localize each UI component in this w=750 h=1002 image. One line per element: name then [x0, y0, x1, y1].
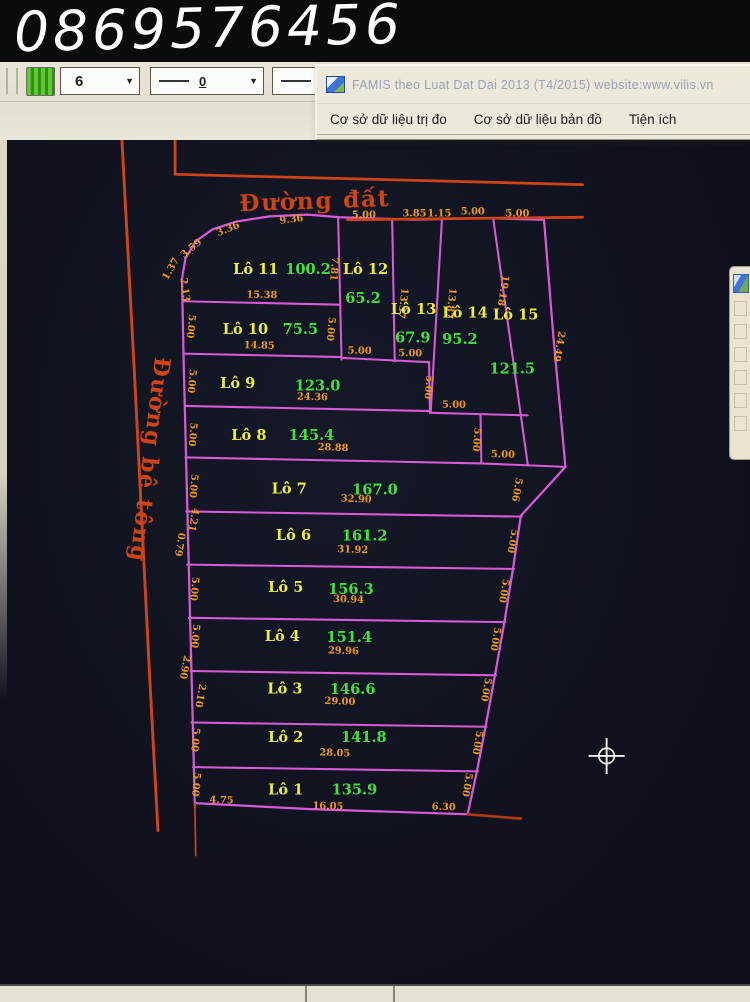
row-line-lot3-bottom: [191, 722, 486, 726]
line-style-dropdown-1[interactable]: 0 ▼: [150, 67, 264, 95]
dimension-label: 3.36: [215, 220, 242, 239]
row-line-lot11-bottom: [183, 301, 340, 304]
lot-area: 161.2: [342, 528, 388, 545]
lot-area: 167.0: [352, 481, 398, 498]
dimension-label: 28.05: [319, 747, 350, 759]
cadastral-map: 3.363.591.372.139.365.003.851.155.005.00…: [0, 140, 750, 985]
tool-button[interactable]: [734, 416, 747, 431]
dimension-label: 5.00: [442, 399, 466, 410]
row-line-lot6-bottom: [187, 565, 514, 569]
dimension-label: 5.00: [187, 576, 200, 601]
lot-label: Lô 6: [276, 527, 311, 544]
tool-button[interactable]: [734, 324, 747, 339]
row-line-lot9-bottom: [185, 406, 430, 411]
line-sample-icon: [281, 80, 311, 82]
side-tool-panel: [729, 266, 750, 460]
dimension-label: 5.00: [398, 348, 422, 359]
dimension-label: 3.59: [179, 237, 205, 261]
road-line-top-outer: [175, 140, 582, 185]
photo-top-bar: 0869576456: [0, 0, 750, 62]
dimension-label: 19.18: [495, 274, 511, 306]
lot13-bottom: [395, 360, 429, 362]
lot14-bottom-step: [430, 413, 528, 416]
row-line-lot8-bottom: [185, 457, 481, 463]
lot-area: 123.0: [295, 377, 341, 394]
menu-item-tien-ich[interactable]: Tiện ích: [629, 112, 677, 127]
line-style-value-1: 0: [199, 74, 206, 89]
dimension-label: 5.00: [324, 317, 337, 342]
dimension-label: 31.92: [337, 544, 368, 556]
lot-area: 95.2: [442, 331, 478, 348]
phone-number-overlay: 0869576456: [13, 0, 404, 64]
tool-button[interactable]: [734, 347, 747, 362]
dimension-label: 5.00: [469, 730, 484, 756]
tool-button[interactable]: [734, 393, 747, 408]
taskbar-fragment[interactable]: [0, 984, 750, 1002]
lot-area: 135.9: [332, 782, 378, 799]
lot12-bottom: [342, 358, 395, 361]
menu-item-csdl-tri-do[interactable]: Cơ sở dữ liệu trị đo: [330, 112, 447, 127]
row-line-lot4-bottom: [191, 671, 496, 675]
famis-app-icon: [326, 76, 345, 93]
lot-area: 75.5: [283, 321, 319, 338]
toolbar-grip-handle[interactable]: [6, 68, 18, 94]
lot15-bottom-step: [481, 463, 565, 466]
lot-area: 145.4: [289, 427, 335, 444]
lot-area: 146.6: [330, 681, 376, 698]
divider-lot14-lot15: [493, 220, 527, 464]
dimension-label: 15.38: [246, 290, 277, 302]
dimension-label: 5.00: [505, 528, 520, 554]
map-canvas[interactable]: 3.363.591.372.139.365.003.851.155.005.00…: [0, 140, 750, 985]
lot-label: Lô 7: [272, 480, 307, 497]
dimension-label: 5.00: [505, 208, 529, 219]
dimension-label: 5.00: [184, 314, 197, 339]
layer-value: 6: [75, 73, 83, 90]
lot-label: Lô 2: [268, 729, 303, 746]
famis-window-title: FAMIS theo Luat Dat Dai 2013 (T4/2015) w…: [352, 78, 714, 92]
lot-area: 141.8: [341, 729, 387, 746]
dimension-label: 6.30: [432, 802, 457, 814]
dimension-label: 5.00: [348, 345, 372, 356]
dimension-label: 5.00: [187, 473, 200, 498]
chevron-down-icon: ▼: [125, 76, 134, 86]
lot-area: 156.3: [328, 581, 374, 598]
dimension-label: 5.00: [470, 427, 483, 452]
lot-label: Lô 1: [268, 782, 303, 799]
lot-label: Lô 10: [223, 321, 268, 338]
lot-label: Lô 12: [343, 261, 388, 278]
chevron-down-icon: ▼: [249, 76, 258, 86]
dimension-label: 1.15: [427, 208, 451, 219]
dimension-label: 14.85: [244, 340, 275, 352]
lot-label: Lô 3: [267, 680, 302, 697]
road-line-bottom-tail: [468, 814, 521, 818]
lot-label: Lô 13: [391, 301, 436, 318]
line-sample-icon: [159, 80, 189, 82]
menu-item-csdl-ban-do[interactable]: Cơ sở dữ liệu bản đồ: [474, 112, 602, 127]
lot-label: Lô 4: [265, 628, 300, 645]
row-line-lot7-bottom: [186, 511, 521, 516]
map-tool-icon[interactable]: [733, 274, 749, 293]
boundary-tail-bottom-left: [195, 803, 196, 855]
dimension-label: 2.10: [192, 683, 207, 709]
divider-lot11-lot12: [338, 217, 341, 359]
lot-label: Lô 5: [268, 579, 303, 596]
dimension-label: 2.90: [177, 654, 192, 680]
dimension-label: 16.05: [312, 801, 343, 813]
lot-label: Lô 9: [220, 375, 255, 392]
dimension-label: 5.00: [188, 624, 201, 649]
lot-area: 151.4: [326, 629, 372, 646]
dimension-label: 0.79: [172, 532, 187, 558]
famis-window[interactable]: FAMIS theo Luat Dat Dai 2013 (T4/2015) w…: [315, 64, 750, 140]
tool-button[interactable]: [734, 370, 747, 385]
row-line-lot10-bottom: [184, 354, 342, 357]
dimension-label: 5.06: [509, 477, 524, 503]
lot-area: 121.5: [489, 360, 535, 377]
road-name-label: Đường bê tông: [124, 356, 175, 565]
lot-label: Lô 8: [231, 427, 266, 444]
dimension-label: 5.00: [186, 422, 199, 447]
lot-area: 65.2: [345, 290, 381, 307]
dimension-label: 3.85: [402, 208, 426, 219]
famis-menu-bar: Cơ sở dữ liệu trị đo Cơ sở dữ liệu bản đ…: [317, 103, 750, 135]
dimension-label: 4.75: [209, 795, 234, 807]
dimension-label: 5.00: [461, 207, 485, 218]
lot-area: 67.9: [395, 329, 431, 346]
dimension-label: 5.00: [491, 449, 516, 461]
dimension-label: 5.00: [422, 375, 435, 400]
dimension-label: 5.00: [189, 772, 202, 797]
dimension-label: 29.96: [328, 645, 359, 657]
lot-area: 100.2: [285, 261, 331, 278]
dimension-label: 5.00: [185, 369, 198, 394]
dimension-label: 5.00: [188, 727, 201, 752]
screen-edge-glare: [0, 140, 7, 700]
row-line-lot5-bottom: [189, 618, 506, 622]
row-line-lot2-bottom: [193, 767, 478, 771]
layer-dropdown[interactable]: 6 ▼: [60, 67, 140, 95]
lot-label: Lô 11: [233, 261, 278, 278]
road-name-label: Đường đất: [239, 185, 391, 217]
color-swatch-icon[interactable]: [26, 67, 55, 96]
famis-title-bar[interactable]: FAMIS theo Luat Dat Dai 2013 (T4/2015) w…: [317, 66, 750, 103]
dimension-label: 2.13: [177, 277, 191, 302]
lot-label: Lô 15: [493, 306, 538, 323]
tool-button[interactable]: [734, 301, 747, 316]
lot-label: Lô 14: [442, 305, 487, 322]
